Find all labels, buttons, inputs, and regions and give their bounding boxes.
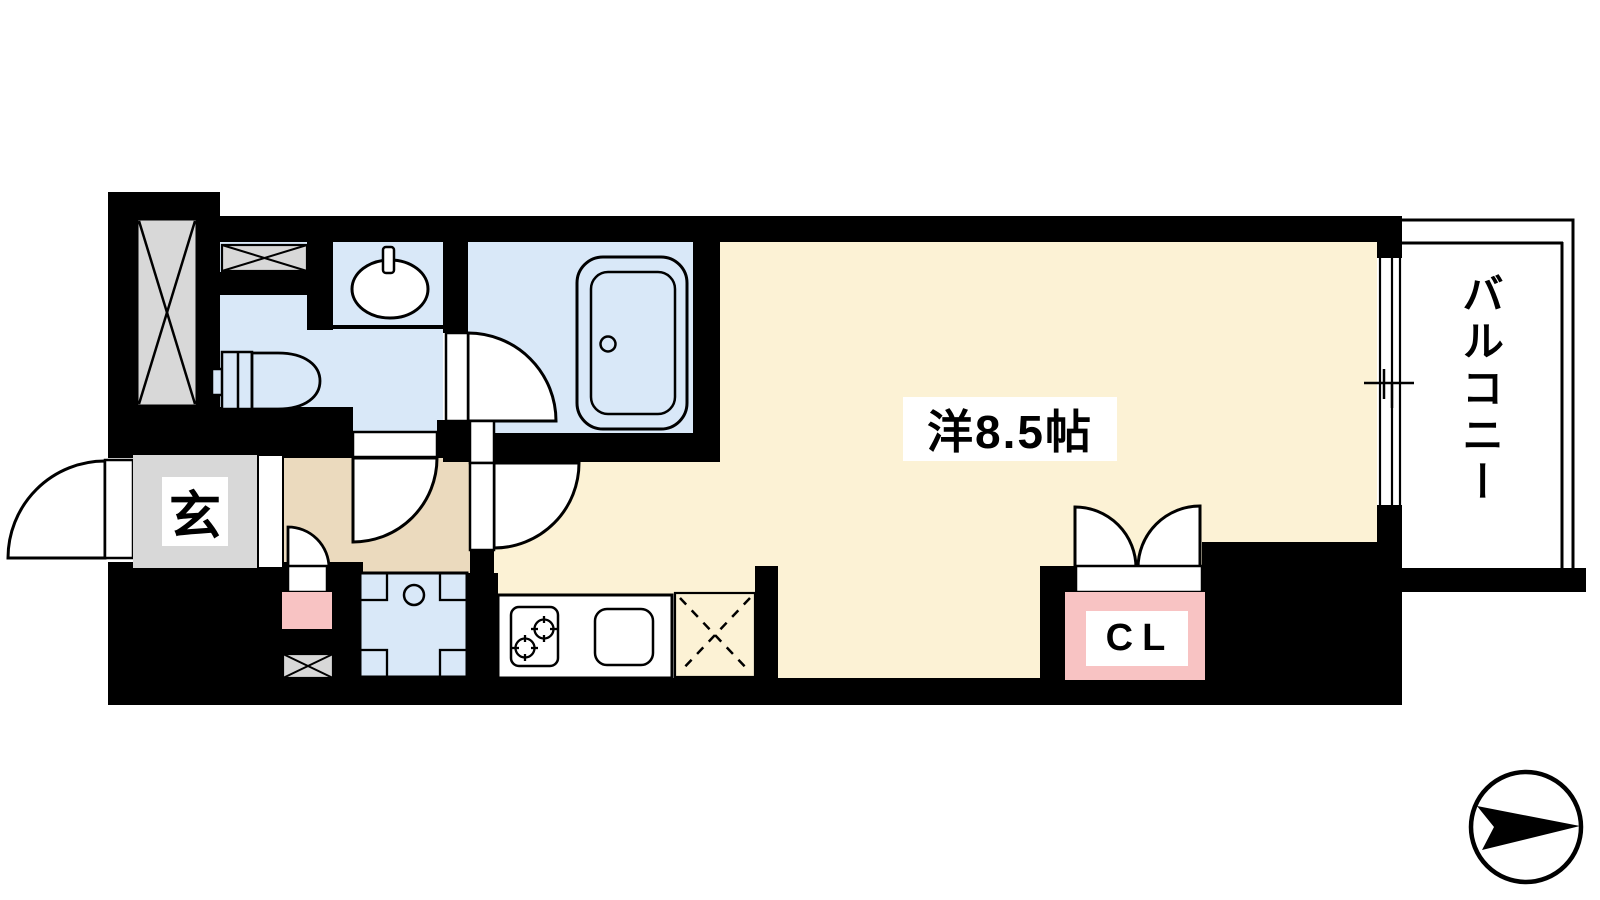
wall-bath-right: [693, 216, 720, 462]
entrance-label: 玄: [162, 477, 228, 546]
hall-closet-door-frame: [288, 566, 327, 592]
bathroom-door-leaf: [446, 333, 468, 421]
wall-window-corner: [1377, 242, 1402, 260]
closet-label: CL: [1086, 611, 1188, 666]
wall-bath-bottom: [466, 433, 720, 462]
wall-below-window: [1377, 505, 1402, 545]
wall-bottom-right-block: [1202, 542, 1402, 690]
wall-fridge-stub: [755, 566, 778, 680]
toilet-door-leaf: [353, 432, 437, 457]
main-room-area: [720, 242, 1377, 545]
main-room-door-jamb: [470, 421, 494, 463]
washbasin-faucet: [383, 247, 394, 273]
washer-drain: [404, 585, 424, 605]
main-room-label: 洋8.5帖: [903, 397, 1117, 461]
compass: [1471, 772, 1581, 882]
kitchen-sink: [595, 609, 653, 665]
wall-closet-left: [1040, 566, 1067, 680]
toilet-bowl: [252, 353, 320, 409]
bathtub: [577, 257, 687, 429]
line-washbasin-nook: [333, 325, 443, 329]
wall-entrance-top: [108, 407, 353, 458]
balcony-label: バルコニー: [1454, 272, 1506, 532]
wall-kitchen-left: [467, 573, 498, 680]
main-room-door-leaf: [470, 463, 494, 550]
wall-bath-bottom-left: [443, 421, 468, 462]
wall-door-stub-lower: [470, 550, 494, 573]
wall-top: [215, 216, 1402, 242]
bathtub-drain: [601, 337, 616, 352]
wall-balcony-bottom: [1402, 568, 1586, 592]
wall-washbasin-stub: [307, 242, 333, 330]
wall-shaft-top: [108, 192, 220, 218]
wall-toilet-bath: [443, 242, 468, 333]
hall-closet-box: [282, 592, 332, 629]
entrance-door-swing: [8, 461, 105, 558]
floor-plan-page: 洋8.5帖 玄 CL バルコニー: [0, 0, 1600, 900]
entrance-door-leaf: [105, 460, 133, 558]
main-room-lower-area: [778, 545, 1040, 680]
floor-plan-drawing: [0, 0, 1600, 900]
wall-under-duct: [220, 272, 307, 295]
entrance-step: [258, 455, 283, 568]
closet-door-track: [1076, 566, 1202, 592]
